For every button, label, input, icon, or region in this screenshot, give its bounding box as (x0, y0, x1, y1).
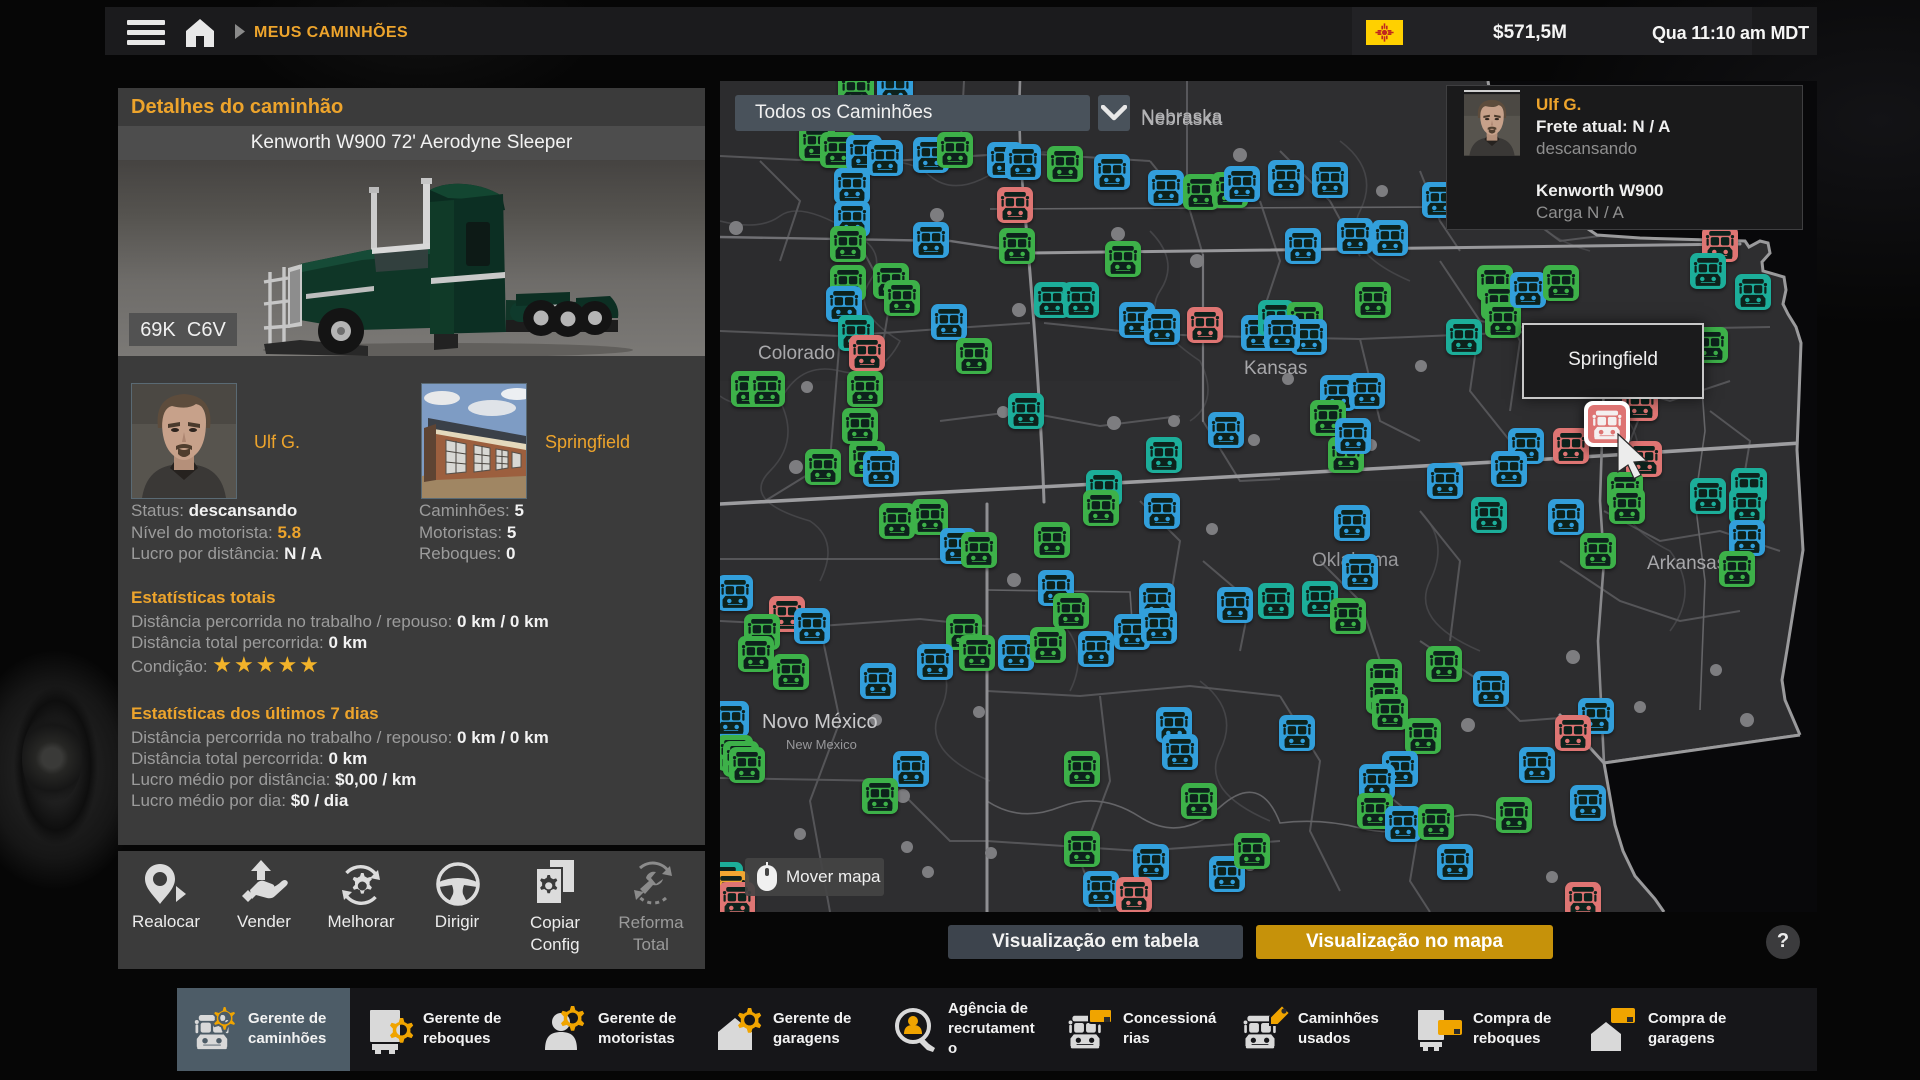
svg-text:Colorado: Colorado (758, 343, 835, 364)
svg-text:Arkansas: Arkansas (1647, 553, 1726, 574)
svg-text:New Mexico: New Mexico (786, 737, 857, 752)
svg-text:Novo México: Novo México (762, 711, 878, 733)
svg-text:Kansas: Kansas (1244, 358, 1307, 379)
